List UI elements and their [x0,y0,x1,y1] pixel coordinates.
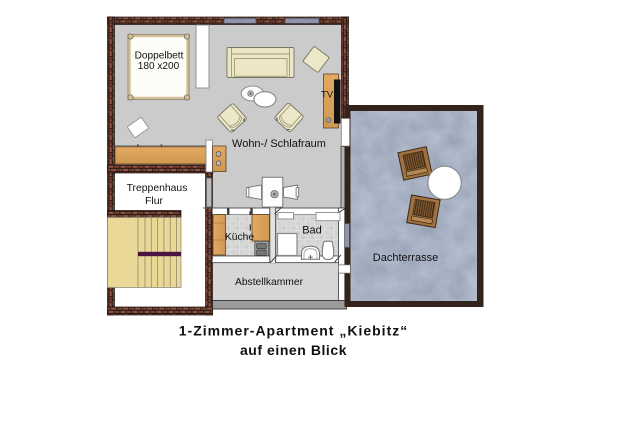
svg-text:auf einen Blick: auf einen Blick [240,342,347,358]
svg-text:Küche: Küche [225,232,254,243]
svg-text:Flur: Flur [145,195,164,207]
svg-text:Bad: Bad [302,225,322,237]
svg-text:Doppelbett: Doppelbett [135,50,184,61]
svg-text:1-Zimmer-Apartment „Kiebitz“: 1-Zimmer-Apartment „Kiebitz“ [179,323,408,339]
svg-text:Wohn-/ Schlafraum: Wohn-/ Schlafraum [232,138,326,150]
svg-text:180 x200: 180 x200 [138,61,180,72]
svg-text:Treppenhaus: Treppenhaus [127,183,188,194]
svg-text:TV: TV [321,90,334,101]
svg-text:Abstellkammer: Abstellkammer [235,277,304,288]
svg-text:Dachterrasse: Dachterrasse [373,252,438,264]
